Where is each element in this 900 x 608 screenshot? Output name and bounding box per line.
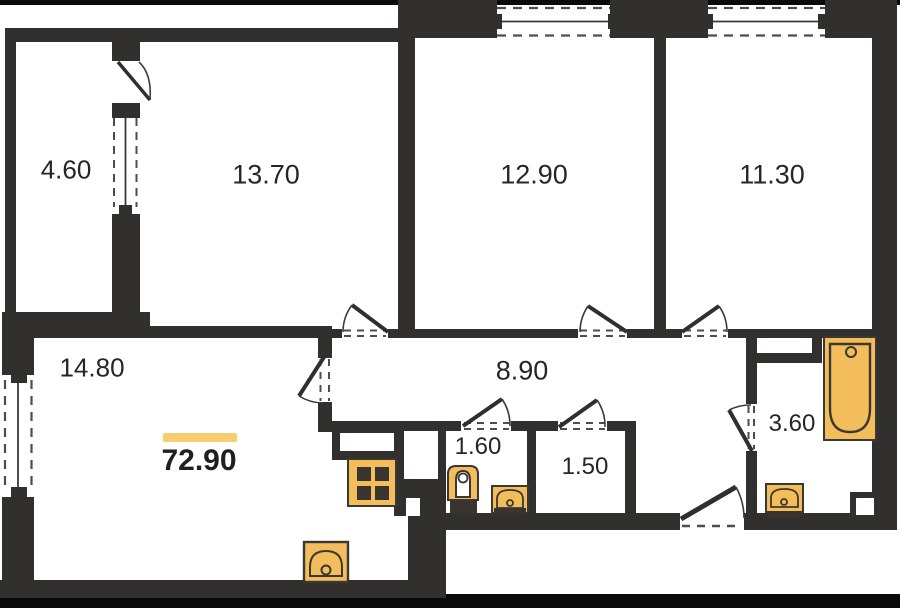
total-area-label: 72.90 <box>161 444 236 478</box>
room-area-label-hallway: 8.90 <box>496 356 549 387</box>
room-area-label-balcony: 4.60 <box>41 155 92 186</box>
toilet-icon <box>448 466 478 514</box>
vent-duct-icon <box>856 498 874 515</box>
room-area-label-living-room: 14.80 <box>59 353 124 384</box>
window-icon <box>5 372 32 498</box>
door-icon <box>463 399 510 429</box>
window-icon <box>704 8 827 36</box>
room-area-label-bathroom: 3.60 <box>769 410 816 438</box>
room-area-label-bedroom-middle: 12.90 <box>500 160 568 191</box>
door-icon <box>343 305 388 336</box>
door-icon <box>118 62 150 100</box>
window-icon <box>114 118 137 215</box>
kitchen-sink-icon <box>304 542 348 582</box>
entrance-door-icon <box>681 487 744 526</box>
door-icon <box>559 400 605 429</box>
walls-layer <box>0 0 900 608</box>
door-icon <box>682 306 727 336</box>
stove-icon <box>348 459 396 506</box>
wc-sink-icon <box>492 486 528 514</box>
total-area-highlight-bar <box>163 433 237 442</box>
bathtub-icon <box>824 337 876 440</box>
window-icon <box>493 8 617 36</box>
floor-plan-drawing <box>0 0 900 608</box>
floor-plan: 4.60 13.70 12.90 11.30 14.80 8.90 1.60 1… <box>0 0 900 608</box>
door-icon <box>299 357 329 403</box>
door-icon <box>729 405 754 451</box>
room-area-label-wc: 1.60 <box>455 433 502 461</box>
room-area-label-bedroom-left: 13.70 <box>232 160 300 191</box>
room-area-label-storage: 1.50 <box>562 453 609 481</box>
door-icon <box>580 306 627 336</box>
room-area-label-bedroom-right: 11.30 <box>739 160 805 191</box>
bathroom-sink-icon <box>766 484 803 518</box>
